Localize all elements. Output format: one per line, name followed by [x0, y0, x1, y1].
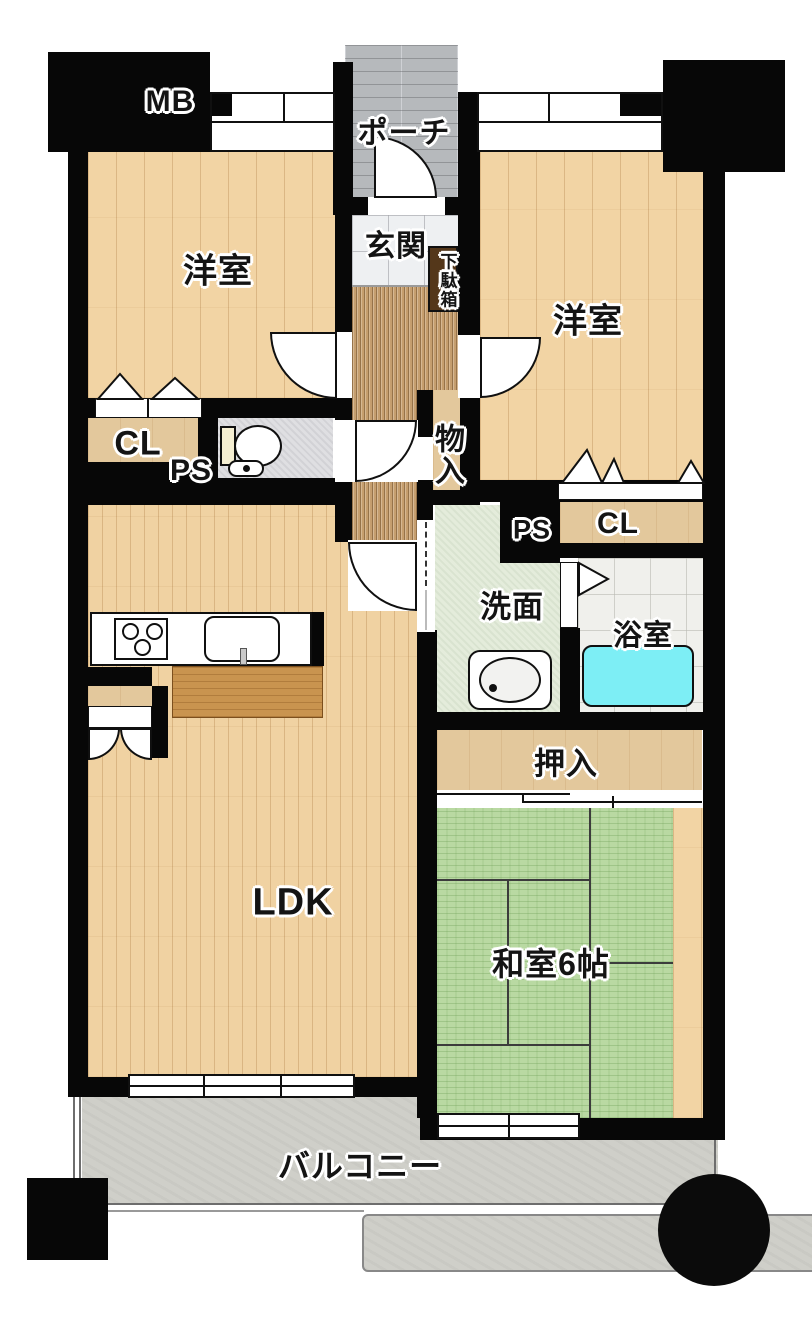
closet-left-bifold-panel [148, 398, 202, 418]
label-bathroom: 浴室 [613, 612, 673, 654]
window-washitsu-balcony [437, 1113, 580, 1139]
closet-left-bifold-panel [95, 398, 148, 418]
window-midline [130, 1085, 353, 1087]
wall-hall-left-b [335, 398, 352, 420]
label-storage: 物入 [424, 423, 468, 487]
bathroom-door [560, 562, 578, 628]
window-tick [203, 1076, 205, 1096]
label-balcony: バルコニー [278, 1141, 442, 1187]
label-washroom: 洗面 [480, 582, 544, 627]
wall-left [68, 150, 88, 1077]
room2-door-opening [458, 335, 480, 398]
slider-tick [522, 793, 524, 803]
washbasin-drain-dot [489, 684, 497, 692]
window-ldk-balcony [128, 1074, 355, 1098]
ldk-floor [88, 505, 352, 1077]
wall-kitchen-closet-top [88, 667, 152, 687]
washroom-door [417, 520, 435, 632]
window-tick [508, 1115, 510, 1137]
window-tick [548, 94, 550, 123]
bottom-left-pillar [27, 1178, 108, 1260]
toilet-door-opening [335, 420, 352, 482]
window-room1 [210, 92, 335, 152]
closet-left-bifold-icon [90, 372, 210, 399]
label-closet-right: CL [597, 507, 639, 541]
wall-kitchen-closet-right [150, 686, 168, 758]
closet-right-bifold-icon [556, 446, 706, 483]
window-midline [212, 121, 333, 123]
label-futon-closet: 押入 [534, 739, 598, 784]
washbasin-bowl-icon [479, 657, 541, 703]
balcony-rail [108, 1210, 364, 1212]
label-closet-left: CL [114, 425, 161, 464]
label-pipe-space-left: PS [170, 454, 212, 488]
tatami-joint [437, 879, 591, 881]
room1-door-opening [335, 332, 352, 398]
washroom-door-line [425, 590, 427, 630]
futon-closet-slider [437, 790, 702, 808]
label-porch: ポーチ [358, 108, 451, 152]
window-midline [479, 121, 661, 123]
label-pipe-space-right: PS [513, 515, 551, 546]
wall-under-storage [433, 490, 480, 505]
label-shoe-cabinet: 下駄箱 [435, 253, 460, 310]
wall-wash-ldk-divider [417, 630, 437, 712]
wall-right [703, 152, 725, 1140]
label-entrance: 玄関 [365, 221, 427, 265]
label-western-room-right: 洋室 [553, 294, 623, 343]
window-room2 [477, 92, 663, 152]
ldk-floor-right [352, 600, 417, 1077]
label-mb: MB [146, 85, 195, 119]
window-tick [280, 1076, 282, 1096]
wall-bath-left [560, 628, 580, 712]
stamp-cover-circle [658, 1174, 770, 1286]
wall-room1-bottom-a [68, 398, 95, 418]
stove-burner [146, 623, 163, 640]
kitchen-closet-band [88, 706, 152, 728]
toilet-flush-dot [243, 465, 250, 472]
wall-washitsu-left [417, 730, 437, 1118]
floor-plan: MB ポーチ 玄関 下駄箱 洋室 洋室 CL PS 物入 PS CL 洗面 浴室… [0, 0, 812, 1336]
kitchen-island-counter [172, 666, 323, 718]
japanese-room-wood-strip [673, 808, 703, 1118]
bathroom-fold-door-icon [578, 562, 610, 596]
closet-right-bifold-band [558, 483, 703, 500]
window-tick [283, 94, 285, 123]
wall-porch-left [333, 62, 353, 215]
wall-toilet-bottom [218, 478, 335, 505]
stove-burner [122, 623, 139, 640]
entrance-door-opening [368, 197, 445, 215]
label-japanese-room: 和室6帖 [492, 939, 610, 985]
stove-burner [134, 639, 151, 656]
tatami-joint [437, 1044, 591, 1046]
kitchen-faucet-icon [240, 648, 247, 665]
label-ldk: LDK [252, 882, 333, 925]
balcony-rail [73, 1097, 75, 1178]
wall-room1-bottom-b [203, 398, 335, 418]
kitchen-closet-floor [88, 686, 152, 706]
washroom-door-dashed-line [425, 522, 427, 586]
window-frame-stub [620, 94, 661, 116]
kitchen-counter-stub [310, 612, 324, 666]
wall-under-wash-bath [417, 712, 725, 730]
wall-hall-left-c [335, 482, 352, 542]
label-western-room-left: 洋室 [183, 244, 253, 293]
balcony-rail [79, 1097, 81, 1178]
bathtub-icon [582, 645, 694, 707]
wall-cl-bath-band [560, 543, 703, 558]
slider-tick [612, 796, 614, 808]
slider-line [437, 793, 570, 795]
balcony-rail [68, 1203, 718, 1205]
window-frame-stub [212, 94, 232, 116]
wall-hall-left-a [335, 215, 352, 332]
